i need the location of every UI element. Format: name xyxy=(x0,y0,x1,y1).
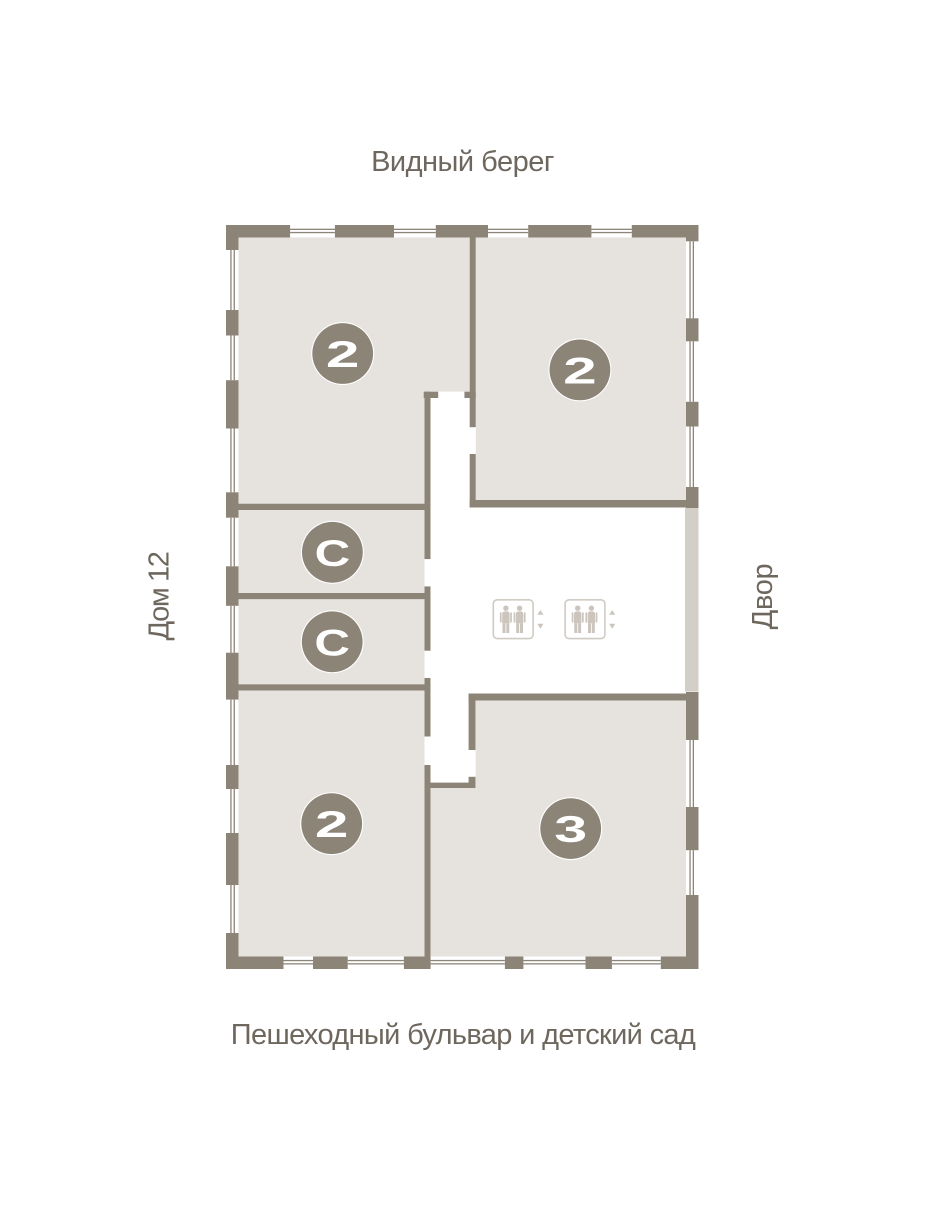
svg-text:2: 2 xyxy=(563,350,597,391)
svg-text:2: 2 xyxy=(326,334,360,375)
svg-text:3: 3 xyxy=(554,809,587,850)
svg-text:Двор: Двор xyxy=(747,564,779,630)
svg-text:2: 2 xyxy=(315,804,349,845)
svg-text:Пешеходный бульвар и детский с: Пешеходный бульвар и детский сад xyxy=(231,1019,696,1051)
svg-text:С: С xyxy=(314,623,350,664)
svg-text:Видный берег: Видный берег xyxy=(371,146,554,178)
svg-text:Дом 12: Дом 12 xyxy=(144,552,176,640)
svg-text:С: С xyxy=(315,534,351,575)
